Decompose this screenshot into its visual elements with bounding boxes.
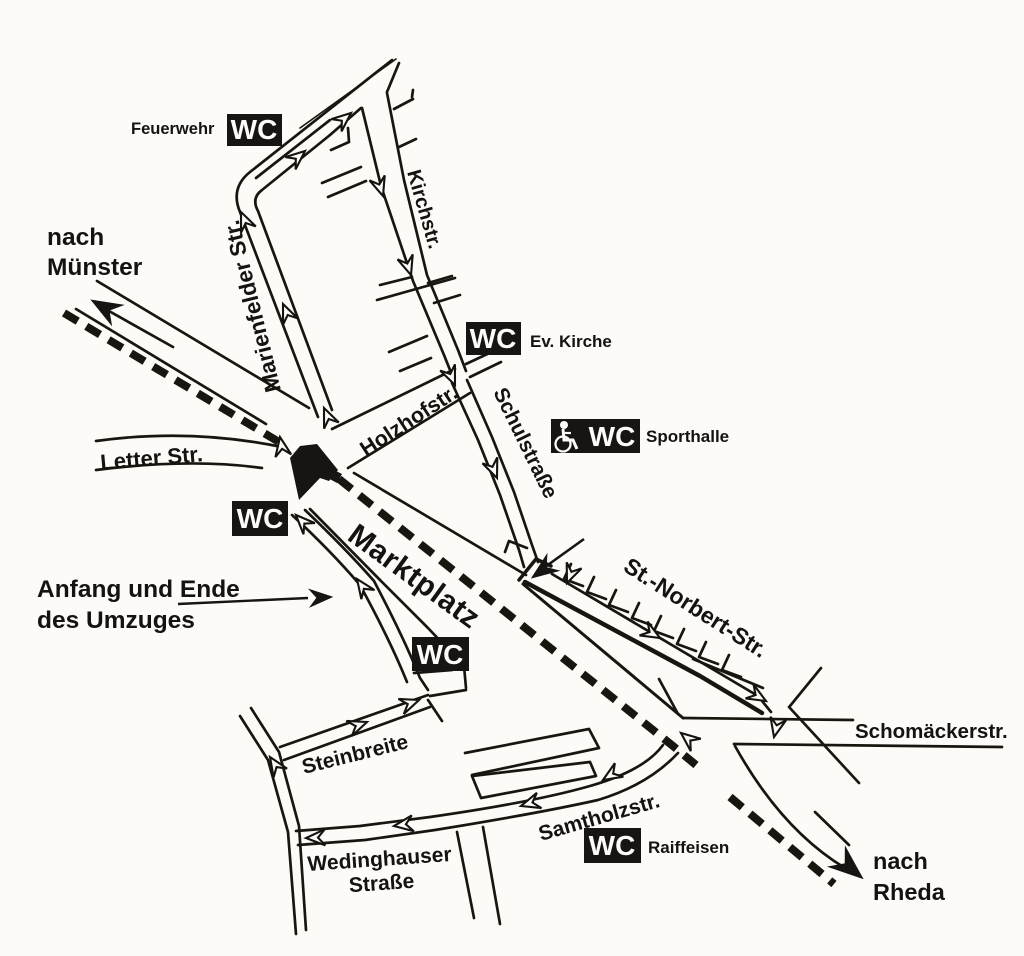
svg-text:des Umzuges: des Umzuges <box>37 607 195 634</box>
svg-text:nach: nach <box>873 848 928 874</box>
svg-text:Straße: Straße <box>348 870 415 898</box>
svg-text:Rheda: Rheda <box>873 879 946 905</box>
svg-text:WC: WC <box>589 830 636 861</box>
svg-text:Anfang und Ende: Anfang und Ende <box>37 576 240 603</box>
svg-text:Schomäckerstr.: Schomäckerstr. <box>855 720 1008 743</box>
svg-text:WC: WC <box>237 503 284 534</box>
svg-text:Münster: Münster <box>47 254 143 281</box>
svg-text:WC: WC <box>231 114 278 145</box>
svg-text:WC: WC <box>417 639 464 670</box>
svg-text:Raiffeisen: Raiffeisen <box>648 838 729 857</box>
svg-text:nach: nach <box>47 224 104 251</box>
svg-text:WC: WC <box>470 323 517 354</box>
svg-text:Feuerwehr: Feuerwehr <box>131 120 215 138</box>
svg-text:Ev. Kirche: Ev. Kirche <box>530 332 612 351</box>
svg-text:WC: WC <box>589 421 636 452</box>
svg-text:Sporthalle: Sporthalle <box>646 427 729 446</box>
